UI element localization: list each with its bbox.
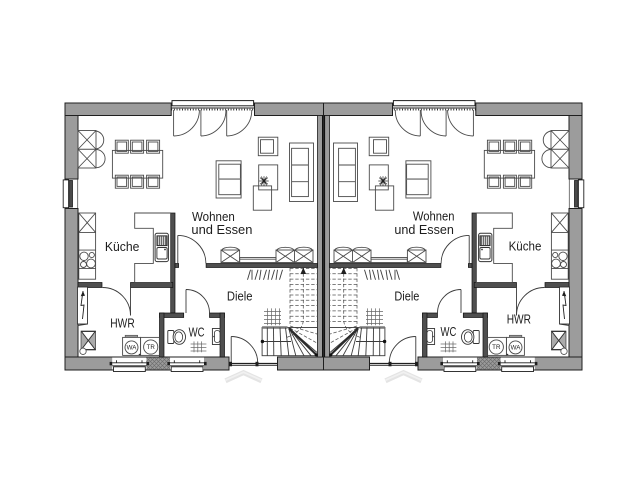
svg-text:Diele: Diele [394,290,419,304]
svg-text:Wohnen: Wohnen [192,210,235,224]
svg-text:WC: WC [189,325,205,339]
svg-text:Küche: Küche [509,240,542,254]
svg-text:WA: WA [511,345,522,352]
svg-text:Wohnen: Wohnen [413,210,455,224]
svg-text:TR: TR [492,344,501,351]
svg-text:Diele: Diele [227,290,253,304]
svg-text:und Essen: und Essen [394,223,454,237]
svg-text:und Essen: und Essen [191,223,252,237]
svg-text:WA: WA [127,345,138,352]
svg-text:HWR: HWR [507,313,531,327]
svg-text:TR: TR [147,344,156,351]
svg-text:WC: WC [441,325,457,339]
svg-text:HWR: HWR [110,316,134,330]
svg-text:Küche: Küche [105,240,140,254]
